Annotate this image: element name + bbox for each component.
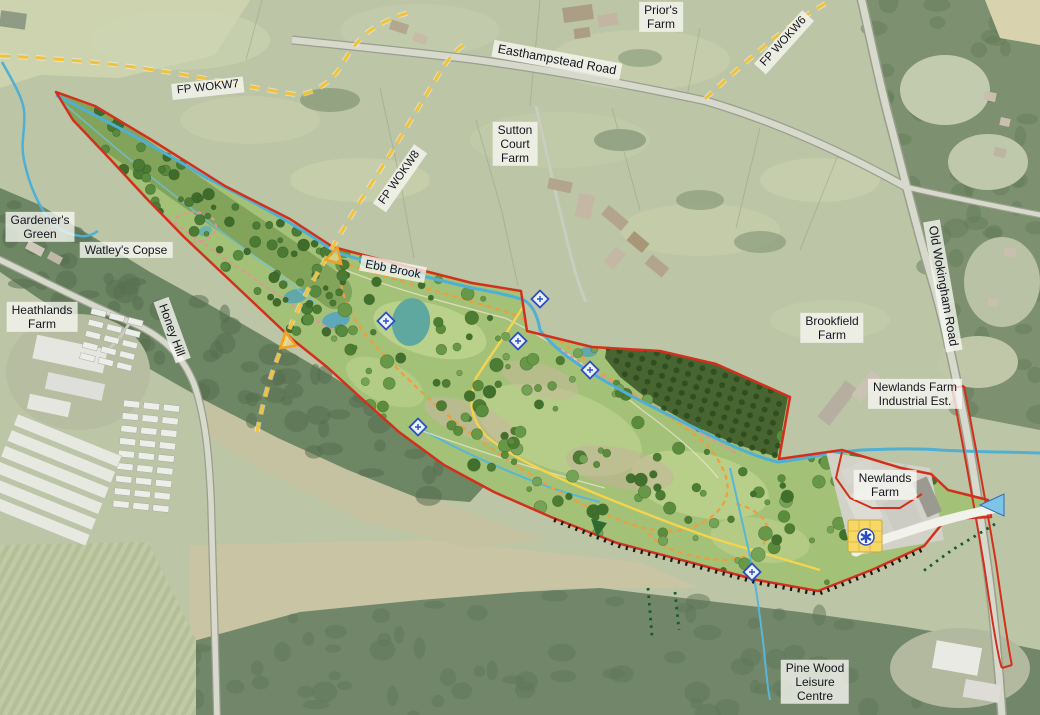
label-line: Newlands [859, 471, 912, 485]
label-gardeners-green: Gardener's Green [6, 212, 75, 242]
label-line: Gardener's [11, 213, 70, 227]
label-line: Sutton [498, 123, 533, 137]
label-line: Farm [859, 485, 912, 499]
label-line: Green [11, 227, 70, 241]
label-sutton-court-farm: Sutton Court Farm [493, 122, 538, 166]
label-line: Prior's [644, 3, 678, 17]
label-line: Watley's Copse [85, 243, 168, 257]
label-heathlands-farm: Heathlands Farm [7, 302, 78, 332]
label-watleys-copse: Watley's Copse [80, 242, 173, 258]
label-line: Newlands Farm [873, 380, 957, 394]
label-line: Farm [644, 17, 678, 31]
label-priors-farm: Prior's Farm [639, 2, 683, 32]
label-line: Farm [12, 317, 73, 331]
label-line: Heathlands [12, 303, 73, 317]
label-pine-wood-leisure: Pine Wood Leisure Centre [781, 660, 849, 704]
label-brookfield-farm: Brookfield Farm [800, 313, 863, 343]
label-line: Pine Wood [786, 661, 844, 675]
label-line: Leisure [786, 675, 844, 689]
label-line: Farm [498, 151, 533, 165]
label-newlands-farm: Newlands Farm [854, 470, 917, 500]
label-line: Industrial Est. [873, 394, 957, 408]
map-graphic [0, 0, 1040, 715]
label-line: Centre [786, 689, 844, 703]
label-line: Brookfield [805, 314, 858, 328]
label-line: Farm [805, 328, 858, 342]
aerial-masterplan-map: Prior's Farm Easthampstead Road FP WOKW6… [0, 0, 1040, 715]
visitor-hub [848, 520, 882, 552]
label-line: Court [498, 137, 533, 151]
label-newlands-farm-industrial: Newlands Farm Industrial Est. [868, 379, 962, 409]
